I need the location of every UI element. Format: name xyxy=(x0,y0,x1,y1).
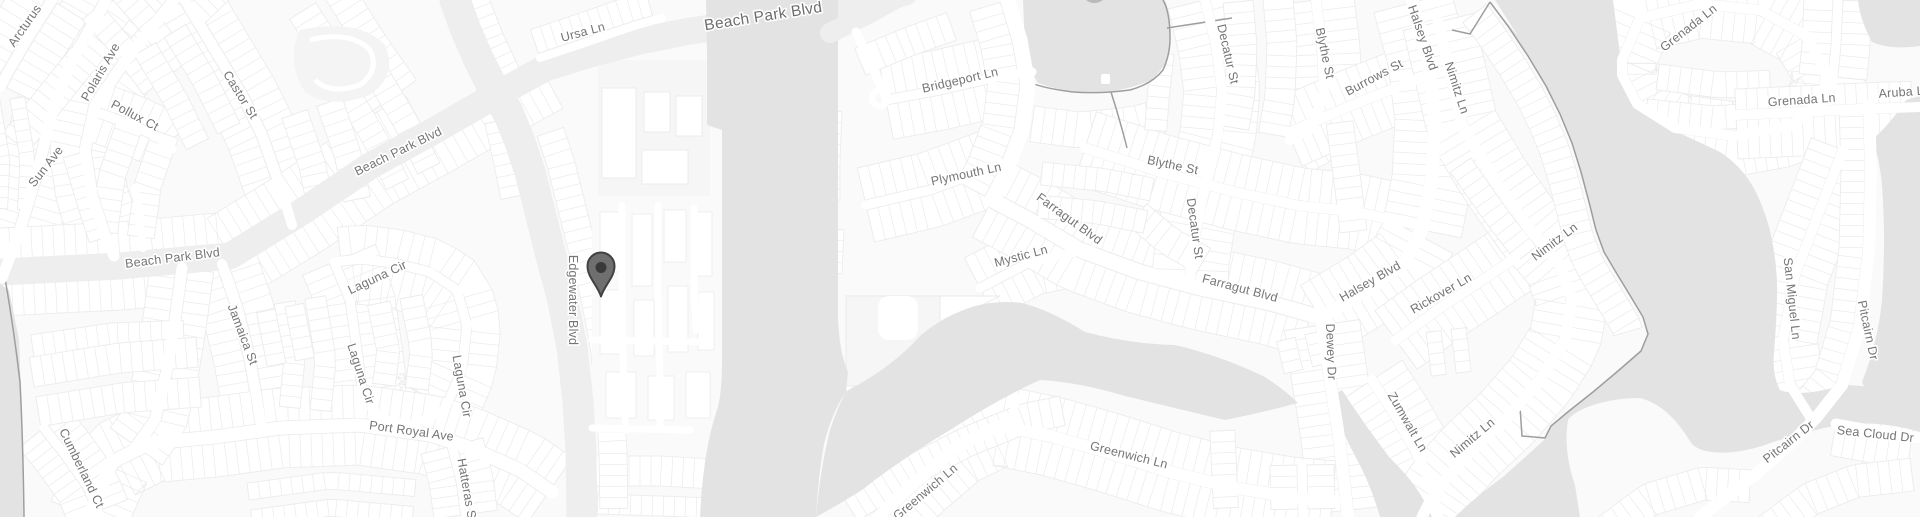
svg-text:Dewey Dr: Dewey Dr xyxy=(1323,323,1339,380)
svg-text:Aruba Ln: Aruba Ln xyxy=(1878,83,1920,101)
svg-text:Edgewater Blvd: Edgewater Blvd xyxy=(566,255,580,345)
